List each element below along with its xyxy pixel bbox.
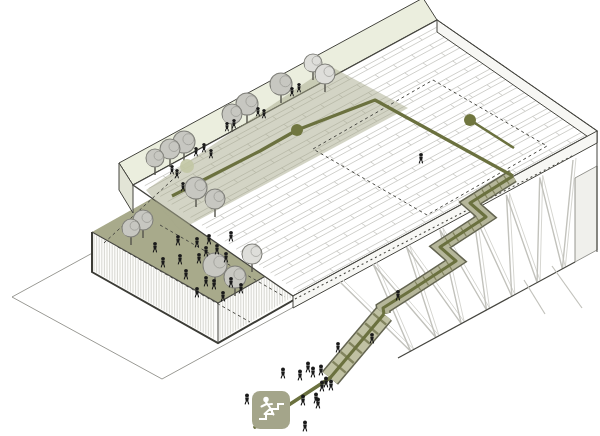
stair-climb-icon <box>252 391 290 429</box>
person-figure <box>301 394 305 405</box>
person-figure <box>316 397 320 408</box>
person-figure <box>319 364 323 375</box>
person-figure <box>245 393 249 404</box>
person-figure <box>306 361 310 372</box>
person-figure <box>320 380 324 391</box>
person-figure <box>298 369 302 380</box>
axonometric-diagram-canvas <box>0 0 600 436</box>
person-figure <box>281 367 285 378</box>
architecture-axonometric-diagram <box>0 0 600 436</box>
person-figure <box>311 366 315 377</box>
person-figure <box>336 342 340 352</box>
person-figure <box>324 376 328 387</box>
person-figure <box>329 379 333 390</box>
person-figure <box>303 420 307 431</box>
